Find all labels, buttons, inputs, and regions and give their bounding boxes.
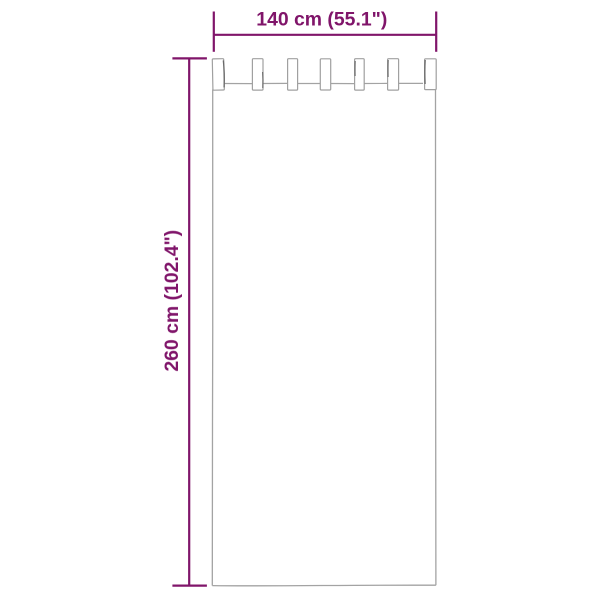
svg-text:140 cm (55.1"): 140 cm (55.1") bbox=[256, 9, 387, 31]
svg-text:260 cm (102.4"): 260 cm (102.4") bbox=[161, 230, 183, 372]
